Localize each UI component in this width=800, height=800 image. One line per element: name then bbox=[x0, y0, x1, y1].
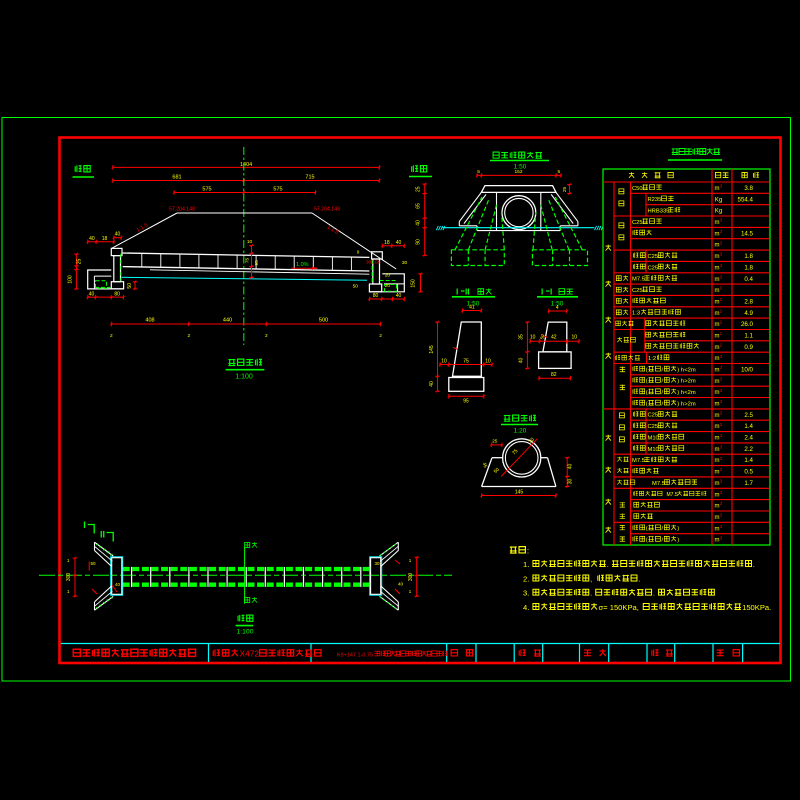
svg-text:35: 35 bbox=[519, 334, 525, 340]
svg-text:9: 9 bbox=[357, 250, 360, 255]
svg-text:m: m bbox=[715, 436, 720, 442]
svg-text:90: 90 bbox=[416, 239, 422, 245]
svg-text:80: 80 bbox=[373, 293, 379, 299]
svg-text:>2m: >2m bbox=[684, 379, 696, 385]
svg-text:) h: ) h bbox=[677, 379, 684, 385]
svg-text:4: 4 bbox=[556, 305, 559, 311]
svg-text:2.5: 2.5 bbox=[744, 412, 753, 419]
svg-text:3.8: 3.8 bbox=[744, 185, 753, 192]
svg-text:575: 575 bbox=[273, 187, 282, 193]
svg-text:m: m bbox=[715, 470, 720, 476]
svg-text:R235: R235 bbox=[648, 197, 662, 203]
svg-text:57.204.148: 57.204.148 bbox=[314, 207, 340, 213]
svg-text:C25: C25 bbox=[648, 265, 659, 271]
svg-text:1.4: 1.4 bbox=[744, 457, 753, 464]
svg-text:10/0: 10/0 bbox=[741, 367, 754, 374]
svg-text:(: ( bbox=[646, 390, 648, 396]
svg-text:m: m bbox=[715, 322, 720, 328]
svg-text:2.2: 2.2 bbox=[744, 446, 753, 453]
svg-text:5: 5 bbox=[557, 169, 560, 175]
svg-text:X472: X472 bbox=[240, 649, 260, 659]
svg-text:300: 300 bbox=[408, 573, 414, 582]
svg-text:4.: 4. bbox=[523, 603, 529, 612]
svg-text:m: m bbox=[715, 390, 720, 396]
svg-text:.: . bbox=[653, 589, 655, 598]
svg-text:26.0: 26.0 bbox=[741, 321, 754, 328]
svg-text:m: m bbox=[715, 402, 720, 408]
svg-text:HRB335: HRB335 bbox=[648, 209, 670, 215]
svg-text:I: I bbox=[456, 288, 458, 297]
svg-text:M10: M10 bbox=[648, 447, 659, 453]
svg-text:82: 82 bbox=[551, 372, 557, 378]
svg-text:) h: ) h bbox=[677, 367, 684, 373]
svg-text:1:2: 1:2 bbox=[648, 356, 656, 362]
svg-text:I: I bbox=[550, 288, 552, 297]
svg-text:145: 145 bbox=[515, 490, 524, 496]
svg-text:30: 30 bbox=[402, 260, 408, 266]
svg-text:10: 10 bbox=[530, 335, 536, 341]
svg-text:1404: 1404 bbox=[240, 162, 252, 168]
svg-text:20: 20 bbox=[385, 283, 391, 289]
svg-text:40: 40 bbox=[429, 381, 435, 387]
svg-text:1.8: 1.8 bbox=[744, 264, 753, 271]
svg-text:152: 152 bbox=[514, 169, 522, 175]
svg-text:10: 10 bbox=[572, 335, 578, 341]
svg-text:50: 50 bbox=[90, 561, 96, 566]
svg-text:18: 18 bbox=[384, 240, 390, 246]
svg-text:2: 2 bbox=[379, 333, 382, 339]
svg-text:25: 25 bbox=[77, 259, 83, 265]
svg-text:1.1: 1.1 bbox=[744, 333, 753, 340]
svg-text:575: 575 bbox=[202, 187, 211, 193]
svg-text:145: 145 bbox=[429, 345, 435, 354]
svg-text:150: 150 bbox=[411, 279, 417, 288]
svg-text:m: m bbox=[715, 277, 720, 283]
svg-text:554.4: 554.4 bbox=[738, 196, 754, 203]
svg-text:2.4: 2.4 bbox=[744, 435, 753, 442]
svg-text:65: 65 bbox=[416, 203, 422, 209]
svg-text:30: 30 bbox=[374, 561, 380, 566]
svg-text:2: 2 bbox=[265, 333, 268, 339]
svg-text:14.5: 14.5 bbox=[741, 230, 754, 237]
svg-text:50: 50 bbox=[353, 284, 359, 290]
svg-text:50: 50 bbox=[127, 283, 133, 289]
svg-text:M7.5: M7.5 bbox=[632, 458, 645, 464]
svg-text:25: 25 bbox=[416, 186, 422, 192]
svg-text:m: m bbox=[715, 379, 720, 385]
svg-text:150KPa.: 150KPa. bbox=[742, 603, 771, 612]
svg-text:) h: ) h bbox=[677, 401, 684, 407]
svg-text:m: m bbox=[715, 481, 720, 487]
svg-text:(: ( bbox=[646, 379, 648, 385]
svg-text:2.8: 2.8 bbox=[744, 298, 753, 305]
svg-text:300.08: 300.08 bbox=[366, 260, 380, 265]
svg-text:40: 40 bbox=[89, 236, 95, 242]
svg-text:408: 408 bbox=[145, 318, 154, 324]
svg-text:m: m bbox=[715, 368, 720, 374]
svg-text:10: 10 bbox=[441, 359, 447, 365]
svg-text:II: II bbox=[465, 288, 470, 297]
svg-text::: : bbox=[527, 546, 529, 555]
svg-text:<2m: <2m bbox=[684, 367, 696, 373]
svg-text:C25: C25 bbox=[632, 220, 643, 226]
svg-text:1.4: 1.4 bbox=[744, 423, 753, 430]
svg-text:M10: M10 bbox=[648, 435, 659, 441]
svg-text:m: m bbox=[715, 515, 720, 521]
svg-text:2.: 2. bbox=[523, 574, 529, 583]
svg-text:m: m bbox=[715, 458, 720, 464]
svg-text:5: 5 bbox=[477, 169, 480, 175]
svg-text:3.: 3. bbox=[523, 589, 529, 598]
svg-text:1:100: 1:100 bbox=[236, 629, 253, 636]
svg-text:2: 2 bbox=[110, 333, 113, 339]
svg-text:m: m bbox=[715, 299, 720, 305]
svg-text:40: 40 bbox=[115, 582, 121, 587]
svg-text:(: ( bbox=[646, 367, 648, 373]
svg-text:,: , bbox=[590, 574, 592, 583]
svg-text:25: 25 bbox=[562, 187, 568, 193]
svg-text:1:3: 1:3 bbox=[632, 311, 640, 317]
svg-text:(: ( bbox=[646, 526, 648, 532]
svg-text:95: 95 bbox=[254, 260, 260, 266]
svg-text:.: . bbox=[638, 574, 640, 583]
svg-text:m: m bbox=[715, 288, 720, 294]
svg-text:I: I bbox=[541, 288, 543, 297]
svg-text:m: m bbox=[715, 526, 720, 532]
svg-text:m: m bbox=[715, 243, 720, 249]
svg-text:(: ( bbox=[646, 401, 648, 407]
svg-text:40: 40 bbox=[89, 291, 95, 297]
svg-text:1.: 1. bbox=[523, 560, 529, 569]
svg-text:m: m bbox=[715, 334, 720, 340]
svg-text:681: 681 bbox=[172, 175, 181, 181]
svg-text:75: 75 bbox=[245, 258, 251, 264]
svg-text:M7.5: M7.5 bbox=[652, 481, 665, 487]
svg-text:0.9: 0.9 bbox=[744, 344, 753, 351]
svg-text:m: m bbox=[715, 424, 720, 430]
svg-text:(: ( bbox=[646, 538, 648, 544]
svg-text:m: m bbox=[715, 186, 720, 192]
svg-text:II: II bbox=[100, 530, 105, 540]
svg-text:<2m: <2m bbox=[684, 390, 696, 396]
svg-text:m: m bbox=[715, 265, 720, 271]
svg-text:m: m bbox=[715, 504, 720, 510]
svg-text:40: 40 bbox=[519, 358, 525, 364]
svg-text:1.0%: 1.0% bbox=[296, 262, 309, 268]
svg-text:m: m bbox=[715, 254, 720, 260]
svg-text:80: 80 bbox=[114, 291, 120, 297]
svg-text:40: 40 bbox=[396, 293, 402, 299]
svg-text:100: 100 bbox=[68, 275, 74, 284]
svg-text:M7.5: M7.5 bbox=[667, 492, 678, 498]
svg-text:I: I bbox=[83, 520, 86, 530]
svg-text:500: 500 bbox=[319, 318, 328, 324]
svg-text:Kg: Kg bbox=[715, 197, 722, 203]
svg-text:m: m bbox=[715, 492, 720, 498]
svg-text:25: 25 bbox=[492, 438, 498, 444]
svg-text:Kg: Kg bbox=[715, 209, 722, 215]
svg-text:K9+147 1-0.75: K9+147 1-0.75 bbox=[337, 652, 373, 658]
svg-text:20: 20 bbox=[385, 272, 391, 278]
svg-text:40: 40 bbox=[416, 220, 422, 226]
svg-text:1.8: 1.8 bbox=[744, 253, 753, 260]
svg-text:57.204.148: 57.204.148 bbox=[169, 207, 195, 213]
svg-text:18: 18 bbox=[102, 236, 108, 242]
svg-text:40: 40 bbox=[115, 232, 121, 238]
svg-text:C25: C25 bbox=[648, 424, 659, 430]
svg-text:1:100: 1:100 bbox=[235, 374, 253, 381]
svg-text:σ= 150KPa,: σ= 150KPa, bbox=[599, 603, 639, 612]
svg-text:C50: C50 bbox=[632, 186, 643, 192]
svg-text:40: 40 bbox=[567, 464, 573, 470]
svg-text:41: 41 bbox=[469, 304, 475, 310]
svg-text:C25: C25 bbox=[648, 413, 659, 419]
svg-text:75: 75 bbox=[463, 359, 469, 365]
svg-text:m: m bbox=[715, 447, 720, 453]
svg-text:2: 2 bbox=[187, 333, 190, 339]
svg-text:10: 10 bbox=[247, 239, 253, 245]
svg-text:4.9: 4.9 bbox=[744, 310, 753, 317]
svg-text:): ) bbox=[677, 538, 679, 544]
svg-text:M7.5: M7.5 bbox=[632, 277, 645, 283]
svg-text:715: 715 bbox=[305, 175, 314, 181]
svg-text:) h: ) h bbox=[677, 390, 684, 396]
svg-text:440: 440 bbox=[223, 318, 232, 324]
svg-text:1.7: 1.7 bbox=[744, 480, 753, 487]
svg-text:0.5: 0.5 bbox=[744, 469, 753, 476]
svg-text:10: 10 bbox=[485, 359, 491, 365]
svg-text:0.4: 0.4 bbox=[744, 276, 753, 283]
svg-text:95: 95 bbox=[463, 399, 469, 405]
svg-text:40: 40 bbox=[396, 240, 402, 246]
svg-text:.: . bbox=[753, 560, 755, 569]
svg-text:m: m bbox=[715, 413, 720, 419]
svg-text:.: . bbox=[607, 560, 609, 569]
svg-text:m: m bbox=[715, 538, 720, 544]
svg-text:m: m bbox=[715, 220, 720, 226]
svg-text:1:20: 1:20 bbox=[514, 427, 527, 434]
svg-text:m: m bbox=[715, 231, 720, 237]
svg-text:): ) bbox=[677, 526, 679, 532]
svg-text:42: 42 bbox=[551, 335, 557, 341]
svg-text:C25: C25 bbox=[648, 254, 659, 260]
svg-text:30: 30 bbox=[567, 479, 573, 485]
svg-text:.: . bbox=[590, 589, 592, 598]
svg-text:>2m: >2m bbox=[684, 401, 696, 407]
svg-text:m: m bbox=[715, 345, 720, 351]
svg-text:m: m bbox=[715, 311, 720, 317]
svg-text:m: m bbox=[715, 356, 720, 362]
svg-text:C25: C25 bbox=[632, 288, 643, 294]
svg-text:40: 40 bbox=[398, 582, 404, 587]
svg-text:300: 300 bbox=[66, 573, 72, 582]
